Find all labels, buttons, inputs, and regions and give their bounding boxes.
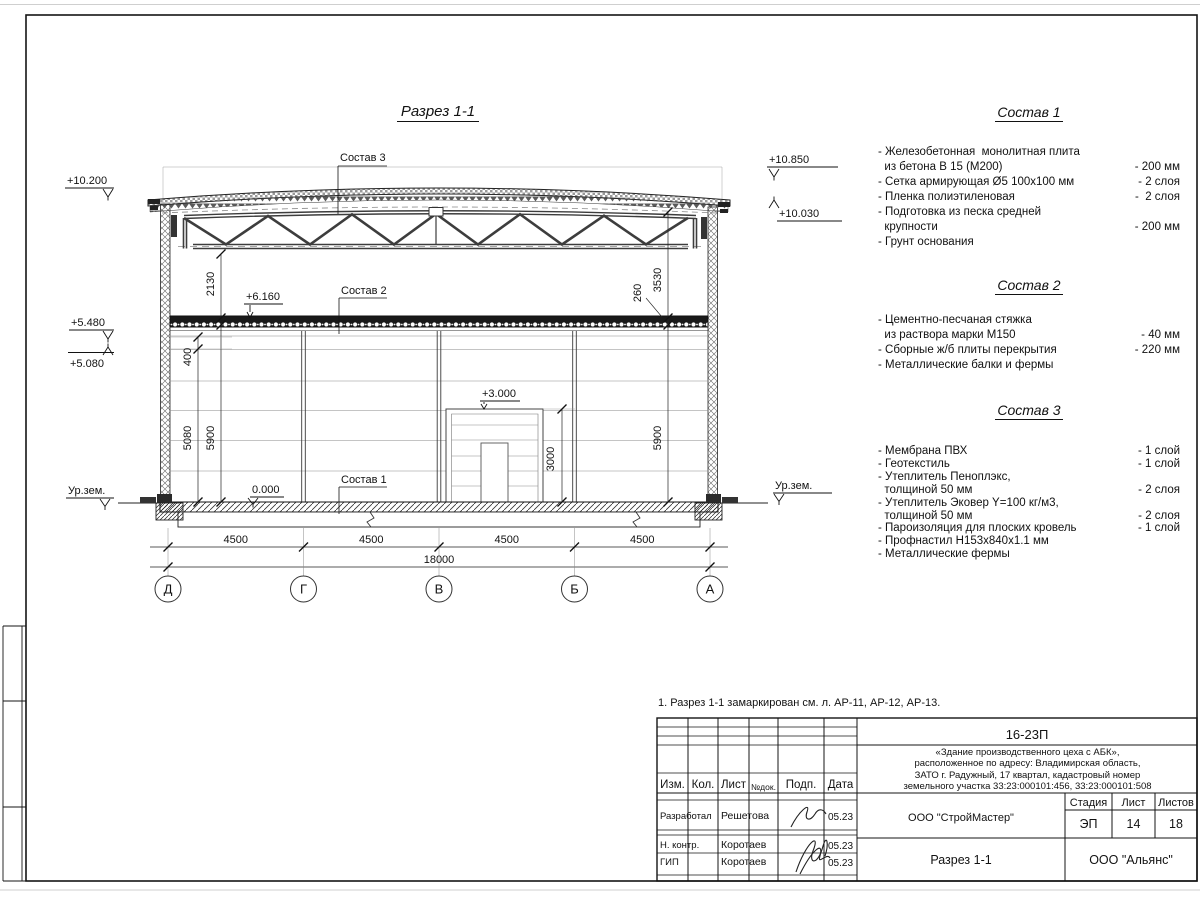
list-item: - Металлические балки и фермы [878, 358, 1180, 373]
axis-v: В [435, 582, 444, 597]
door [481, 443, 508, 502]
dim-260: 260 [632, 284, 644, 302]
list-item: - Цементно-песчаная стяжка [878, 313, 1180, 328]
truss-ridge-plate [429, 208, 443, 217]
mark-5480: +5.480 [71, 317, 105, 329]
mark-10200: +10.200 [67, 175, 107, 187]
wall-left [161, 204, 171, 503]
row-role: ГИП [660, 857, 679, 868]
composition-3-items: - Мембрана ПВХ- 1 слой - Геотекстиль- 1 … [878, 445, 1180, 561]
mark-10850: +10.850 [769, 154, 809, 166]
dim-span-3: 4500 [495, 534, 519, 546]
composition-block-2: Состав 2 - Цементно-песчаная стяжка из р… [878, 277, 1180, 373]
composition-2-title: Состав 2 [878, 277, 1180, 293]
leader-sostav2: Состав 2 [341, 285, 387, 297]
stage-label: Стадия [1065, 797, 1112, 809]
axis-d: Д [164, 582, 173, 597]
drawing-sheet: +10.200 +5.480 +5.080 Ур.зем. +6.160 0.0… [0, 0, 1200, 900]
interior-room [446, 409, 543, 502]
row-role: Разработал [660, 811, 712, 822]
list-item: из бетона В 15 (М200)- 200 мм [878, 160, 1180, 175]
mark-5080: +5.080 [70, 358, 104, 370]
row-date: 05.23 [824, 841, 857, 852]
dim-3000: 3000 [545, 447, 557, 471]
mark-10030: +10.030 [779, 208, 819, 220]
axis-bubbles: Д Г В Б А [155, 576, 723, 602]
doc-code: 16-23П [857, 727, 1197, 742]
eaves-bracket-left [148, 199, 160, 204]
dim-3530: 3530 [652, 268, 664, 292]
object-description: «Здание производственного цеха с АБК», р… [858, 747, 1197, 792]
col-izm: Изм. [657, 779, 688, 791]
stage-value: ЭП [1065, 817, 1112, 831]
list-item: - Профнастил Н153х840х1.1 мм [878, 535, 1180, 548]
mark-6160: +6.160 [246, 291, 280, 303]
list-item: - Геотекстиль- 1 слой [878, 458, 1180, 471]
axis-b: Б [570, 582, 579, 597]
row-name: Коротаев [721, 839, 766, 851]
col-list: Лист [718, 779, 749, 791]
list-item: - Мембрана ПВХ- 1 слой [878, 445, 1180, 458]
wall-right [708, 207, 718, 503]
building-section: +10.200 +5.480 +5.080 Ур.зем. +6.160 0.0… [65, 152, 842, 602]
composition-1-items: - Железобетонная монолитная плита из бет… [878, 145, 1180, 250]
composition-block-1: Состав 1 - Железобетонная монолитная пли… [878, 104, 1180, 250]
sheet-number: 14 [1112, 817, 1155, 831]
dim-total: 18000 [424, 554, 455, 566]
composition-3-title: Состав 3 [878, 402, 1180, 418]
list-item: - Железобетонная монолитная плита [878, 145, 1180, 160]
wall-girt-lines [170, 336, 708, 471]
floor-slab [170, 316, 708, 331]
section-name: Разрез 1-1 [857, 853, 1065, 867]
left-attestation-strip [3, 626, 26, 881]
org-name: ООО "СтройМастер" [857, 812, 1065, 824]
list-item: - Сетка армирующая Ø5 100х100 мм- 2 слоя [878, 175, 1180, 190]
list-item: - Утеплитель Пеноплэкс, [878, 471, 1180, 484]
list-item: - Сборные ж/б плиты перекрытия- 220 мм [878, 343, 1180, 358]
dim-span-1: 4500 [224, 534, 248, 546]
dim-400: 400 [182, 348, 194, 366]
eaves-bracket-right [718, 202, 730, 207]
composition-1-title: Состав 1 [878, 104, 1180, 120]
list-item: из раствора марки М150- 40 мм [878, 328, 1180, 343]
sheet-label: Лист [1112, 797, 1155, 809]
mark-0000: 0.000 [252, 484, 280, 496]
list-item: - Пароизоляция для плоских кровель- 1 сл… [878, 522, 1180, 535]
list-item: - Пленка полиэтиленовая- 2 слоя [878, 190, 1180, 205]
composition-block-3: Состав 3 - Мембрана ПВХ- 1 слой - Геотек… [878, 402, 1180, 561]
col-kol: Кол. [688, 779, 718, 791]
list-item: толщиной 50 мм- 2 слоя [878, 484, 1180, 497]
dim-span-2: 4500 [359, 534, 383, 546]
dim-5900-left: 5900 [205, 426, 217, 450]
footing-left [156, 503, 183, 520]
org2-name: ООО "Альянс" [1065, 853, 1197, 867]
truss-bearing-right [701, 217, 707, 239]
dim-2130: 2130 [205, 272, 217, 296]
base-plate-left [157, 494, 172, 503]
row-date: 05.23 [824, 812, 857, 823]
dim-span-4: 4500 [630, 534, 654, 546]
drawing-title: Разрез 1-1 [378, 103, 498, 120]
composition-2-items: - Цементно-песчаная стяжка из раствора м… [878, 313, 1180, 373]
list-item: - Утеплитель Эковер Y=100 кг/м3, [878, 497, 1180, 510]
sheet-note: 1. Разрез 1-1 замаркирован см. л. АР-11,… [658, 697, 940, 709]
sheets-total: 18 [1155, 817, 1197, 831]
col-podp: Подп. [778, 779, 824, 791]
ground-label-right: Ур.зем. [775, 480, 812, 492]
col-data: Дата [824, 779, 857, 791]
axis-g: Г [300, 582, 307, 597]
list-item: толщиной 50 мм- 2 слоя [878, 510, 1180, 523]
col-ndok: №док. [749, 782, 778, 792]
dim-5080: 5080 [182, 426, 194, 450]
dim-5900-right: 5900 [652, 426, 664, 450]
axis-a: А [706, 582, 715, 597]
truss-bearing-left [171, 215, 177, 237]
list-item: крупности- 200 мм [878, 220, 1180, 235]
row-name: Решетова [721, 810, 769, 822]
list-item: - Металлические фермы [878, 548, 1180, 561]
leader-sostav3: Состав 3 [340, 152, 386, 164]
row-date: 05.23 [824, 858, 857, 869]
signature-1 [791, 807, 826, 827]
row-name: Коротаев [721, 856, 766, 868]
roof-truss [171, 208, 707, 249]
sheets-label: Листов [1155, 797, 1197, 809]
row-role: Н. контр. [660, 840, 699, 851]
mark-3000: +3.000 [482, 388, 516, 400]
list-item: - Подготовка из песка средней [878, 205, 1180, 220]
list-item: - Грунт основания [878, 235, 1180, 250]
leader-sostav1: Состав 1 [341, 474, 387, 486]
base-plate-right [706, 494, 721, 503]
footing-right [695, 503, 722, 520]
ground-label-left: Ур.зем. [68, 485, 105, 497]
